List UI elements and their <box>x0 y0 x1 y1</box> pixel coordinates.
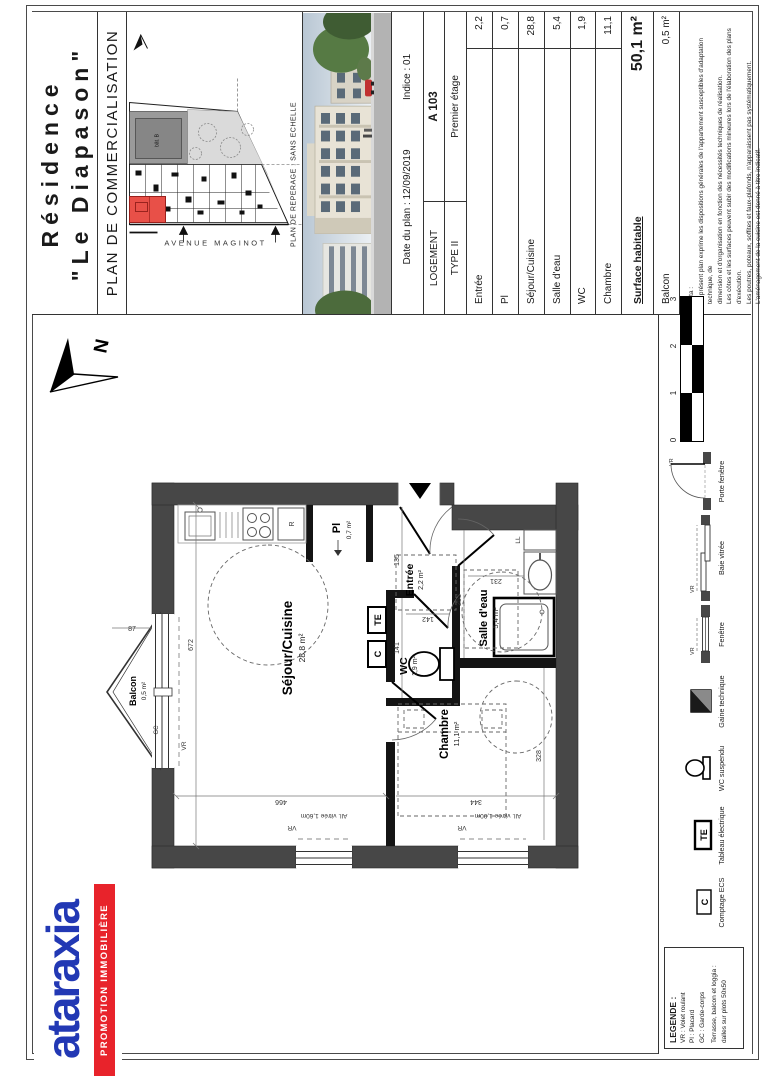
row-label: Entrée <box>467 49 492 314</box>
legend-item: TE Tableau électrique <box>665 802 749 869</box>
chambre-area: 11,1 m² <box>452 721 461 746</box>
entree-area: 2,2 m² <box>418 569 425 590</box>
row-value: 11,1 <box>596 12 621 49</box>
svg-text:VR: VR <box>669 459 675 467</box>
sejour-label: Séjour/Cuisine <box>280 600 295 695</box>
allege-chambre: All. vitrée 1,00m <box>475 812 522 819</box>
dim-141: 141 <box>394 642 401 654</box>
placard-area: 0,7 m² <box>346 520 353 539</box>
svg-text:VR: VR <box>690 648 696 656</box>
surfaces-table: Entrée 2,2 Pl 0,7 Séjour/Cuisine 28,8 Sa… <box>467 12 680 314</box>
balcony-value: 0,5 m² <box>654 12 679 88</box>
table-row: WC 1,9 <box>571 12 597 314</box>
row-label: Salle d'eau <box>545 49 570 314</box>
row-value: 5,4 <box>545 12 570 49</box>
note-line: Nota : <box>687 20 697 304</box>
legend-line: Pl : Placard <box>688 953 697 1043</box>
placard: Pl 0,7 m² <box>331 520 353 556</box>
baie-vitree-icon: VR <box>665 515 713 601</box>
wc-suspendu-icon <box>665 753 713 785</box>
legend-line: GC : Garde-corps <box>698 953 707 1043</box>
dim-142: 142 <box>422 615 434 622</box>
legend-item: C Comptage ECS <box>665 869 749 936</box>
unit-floor: Premier étage <box>445 12 466 201</box>
legend-terrace-line: dalles sur plots 50x50 <box>720 953 729 1043</box>
balcony-label: Balcon <box>654 88 679 314</box>
plan-sheet: R Pl 0,7 m² LL TE C <box>0 0 763 1080</box>
vr-chambre: VR <box>457 824 466 831</box>
row-value: 28,8 <box>519 12 544 49</box>
row-value: 1,9 <box>571 12 596 49</box>
surface-total-row: Surface habitable 50,1 m² <box>622 12 654 314</box>
scale-1: 1 <box>669 391 678 395</box>
svg-text:C: C <box>700 899 710 906</box>
te-box-label: TE <box>373 614 383 626</box>
date-row: Date du plan : 12/09/2019 Indice : 01 <box>392 12 424 314</box>
site-map-section: bât. B <box>127 12 303 314</box>
building-photo <box>303 13 392 314</box>
row-value: 2,2 <box>467 12 492 49</box>
vr-sejour: VR <box>287 824 296 831</box>
residence-name-line2: "Le Diapason" <box>65 45 95 282</box>
comptage-ecs-icon: C <box>665 888 713 918</box>
row-label: Chambre <box>596 49 621 314</box>
note-line: Les côtes et les surfaces peuvent subir … <box>725 20 744 304</box>
plan-date: Date du plan : 12/09/2019 <box>402 100 413 314</box>
north-arrow-icon: N <box>50 337 118 392</box>
table-row: Chambre 11,1 <box>596 12 622 314</box>
scale-bar: 0 1 2 3 <box>669 296 704 442</box>
table-row: Séjour/Cuisine 28,8 <box>519 12 545 314</box>
note-line: dimension et d'organisation en fonction … <box>716 20 726 304</box>
scale-2: 2 <box>669 344 678 348</box>
dim-344: 344 <box>470 798 482 805</box>
windows <box>152 614 528 868</box>
c-box-label: C <box>373 650 383 657</box>
plan-indice: Indice : 01 <box>402 12 413 100</box>
balcon-label: Balcon <box>128 676 138 706</box>
note-line: Le présent plan exprime les dispositions… <box>697 20 716 304</box>
unit-type: TYPE II <box>445 201 466 314</box>
legend-terrace-line: Terrasse, balcon et loggia : <box>710 953 719 1043</box>
scale-0: 0 <box>669 438 678 442</box>
plan-title: PLAN DE COMMERCIALISATION <box>98 12 127 314</box>
legend-items: C Comptage ECS TE Tableau électrique <box>665 448 749 936</box>
porte-fenetre-icon: VR <box>665 453 713 511</box>
dim-253: 253 <box>456 594 463 606</box>
residence-title: Résidence "Le Diapason" <box>32 12 98 314</box>
surface-value: 50,1 m² <box>622 12 653 88</box>
logement-label: LOGEMENT <box>424 201 445 314</box>
sejour-area: 28,8 m² <box>297 633 307 662</box>
legend-item: WC suspendu <box>665 735 749 802</box>
gc-label: GC <box>154 725 160 735</box>
notes: Nota : Le présent plan exprime les dispo… <box>680 12 763 314</box>
entry-arrow-icon <box>409 483 431 499</box>
north-label: N <box>90 337 113 355</box>
street-label: AVENUE MAGINOT <box>164 239 266 248</box>
allege-sejour: All. vitrée 1,60m <box>301 812 348 819</box>
placard-label: Pl <box>331 523 343 533</box>
company-logo: ataraxia PROMOTION IMMOBILIÈRE <box>34 884 122 1076</box>
photo-section <box>303 12 392 314</box>
washer-label: LL <box>515 536 522 544</box>
svg-text:VR: VR <box>690 585 696 593</box>
gaine-technique-icon <box>665 688 713 716</box>
dim-135: 135 <box>394 554 401 566</box>
vr-balcony: VR <box>181 741 188 750</box>
scale-bar-blocks <box>680 296 704 442</box>
highlighted-unit <box>129 197 165 223</box>
legend-box: LEGENDE : VR : Volet roulant Pl : Placar… <box>664 947 744 1049</box>
residence-name-line1: Résidence <box>35 78 65 247</box>
legend-strip: LEGENDE : VR : Volet roulant Pl : Placar… <box>658 315 752 1054</box>
dim-87: 87 <box>128 626 136 633</box>
kitchen: R <box>178 505 306 543</box>
row-label: WC <box>571 49 596 314</box>
fridge-label: R <box>289 521 296 526</box>
row-value: 0,7 <box>493 12 518 49</box>
row-label: Séjour/Cuisine <box>519 49 544 314</box>
entree-label: Entrée <box>404 564 416 597</box>
legend-item: VR Porte fenêtre <box>665 448 749 515</box>
tableau-electrique-icon: TE <box>665 819 713 853</box>
unit-info: LOGEMENT A 103 TYPE II Premier étage <box>424 12 467 314</box>
dim-328: 328 <box>536 750 543 762</box>
electrical-boxes: TE C <box>368 607 386 667</box>
balcony-row: Balcon 0,5 m² <box>654 12 679 314</box>
legend-item: VR Baie vitrée <box>665 515 749 601</box>
legend-item: Gaine technique <box>665 668 749 735</box>
map-building-label: bât. B <box>154 133 160 147</box>
salle-eau-area: 5,4 m² <box>491 607 500 629</box>
table-row: Pl 0,7 <box>493 12 519 314</box>
scale-3: 3 <box>669 297 678 301</box>
north-arrow-mini <box>133 35 147 51</box>
logo-name: ataraxia <box>34 884 92 1076</box>
wc-label: WC <box>398 657 410 675</box>
surface-label: Surface habitable <box>622 88 653 314</box>
legend-line: VR : Volet roulant <box>679 953 688 1043</box>
table-row: Salle d'eau 5,4 <box>545 12 571 314</box>
row-label: Pl <box>493 49 518 314</box>
logo-tagline: PROMOTION IMMOBILIÈRE <box>94 884 115 1076</box>
site-map: bât. B <box>127 15 303 312</box>
unit-number: A 103 <box>424 12 445 201</box>
title-block: Résidence "Le Diapason" PLAN DE COMMERCI… <box>32 12 751 315</box>
dim-466: 466 <box>275 798 287 805</box>
note-line: Les poutres, poteaux, soffites et faux-p… <box>745 20 755 304</box>
dim-672: 672 <box>188 639 195 651</box>
salle-eau-label: Salle d'eau <box>478 589 490 646</box>
fenetre-icon: VR <box>665 606 713 664</box>
furniture <box>208 545 552 816</box>
legend-item: VR Fenêtre <box>665 601 749 668</box>
legend-title: LEGENDE : <box>668 953 678 1043</box>
balcon-area: 0,5 m² <box>141 681 148 700</box>
svg-text:TE: TE <box>699 830 709 842</box>
scale-numbers: 0 1 2 3 <box>669 296 679 442</box>
map-caption: PLAN DE REPERAGE : SANS ECHELLE <box>290 102 297 247</box>
wc-area: 1,9 m² <box>412 655 419 676</box>
chambre-label: Chambre <box>439 709 451 759</box>
table-row: Entrée 2,2 <box>467 12 493 314</box>
note-line: L'aménagement de la cuisine est donné à … <box>754 20 763 304</box>
dim-231: 231 <box>490 577 502 584</box>
